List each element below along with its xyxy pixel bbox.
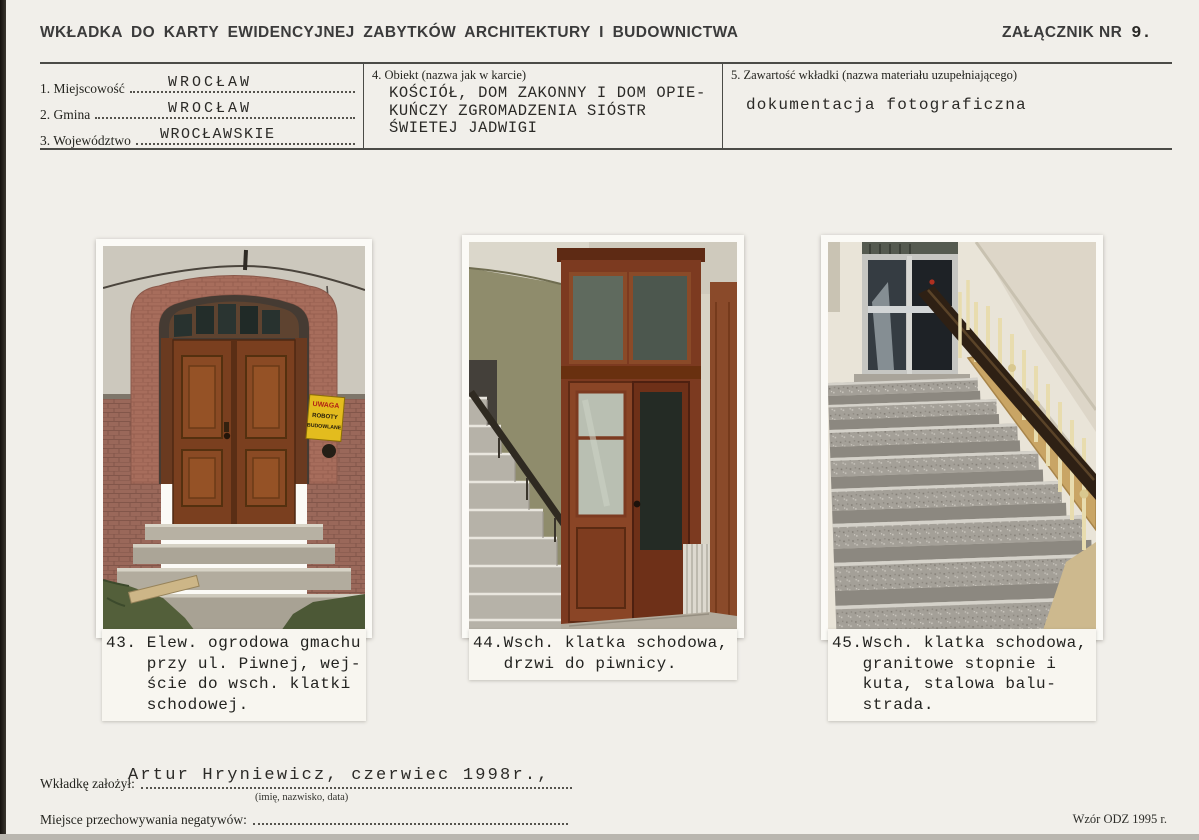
page-title: WKŁADKA DO KARTY EWIDENCYJNEJ ZABYTKÓW A… [40,24,738,42]
caption-photo-43: 43. Elew. ogrodowa gmachu przy ul. Piwne… [102,629,366,721]
photo-cellar-door-image [469,242,737,631]
scanned-record-card: WKŁADKA DO KARTY EWIDENCYJNEJ ZABYTKÓW A… [0,0,1199,840]
fields-col-contents: 5. Zawartość wkładki (nazwa materiału uz… [722,64,1172,148]
field-wojewodztwo-label: 3. Województwo [40,133,131,149]
photo-garden-door: UWAGA ROBOTY BUDOWLANE [96,239,372,638]
scan-edge-left [0,0,6,840]
field-obiekt-value: KOŚCIÓŁ, DOM ZAKONNY I DOM OPIE- KUŃCZY … [389,85,722,138]
hanging-object [322,444,336,458]
field-gmina-value: WROCŁAW [168,100,252,117]
field-zawartosc-value: dokumentacja fotograficzna [746,96,1172,114]
field-miejscowosc-label: 1. Miejscowość [40,81,125,97]
founder-label: Wkładkę założył: [40,776,135,792]
field-miejscowosc: 1. Miejscowość WROCŁAW [40,71,357,97]
photo-granite-stairs [821,235,1103,640]
caption-line: 45.Wsch. klatka schodowa, [832,633,1094,654]
door-knob [634,501,641,508]
field-wojewodztwo: 3. Województwo WROCŁAWSKIE [40,123,357,149]
scan-edge-bottom [0,834,1199,840]
caption-line: 43. Elew. ogrodowa gmachu [106,633,364,654]
founder-value: Artur Hryniewicz, czerwiec 1998r., [128,766,550,785]
glazed-partition [557,248,705,631]
field-wojewodztwo-value: WROCŁAWSKIE [160,126,276,143]
caption-line: strada. [832,695,1094,716]
caption-line: 44.Wsch. klatka schodowa, [473,633,735,654]
field-zawartosc-label: 5. Zawartość wkładki (nazwa materiału uz… [731,68,1172,83]
annex-number: 9. [1131,24,1151,43]
door-handle [224,433,230,439]
photo-cellar-door [462,235,744,638]
fields-col-location: 1. Miejscowość WROCŁAW 2. Gmina WROCŁAW … [40,64,363,148]
caption-line: drzwi do piwnicy. [473,654,735,675]
field-gmina: 2. Gmina WROCŁAW [40,97,357,123]
door-jamb [161,338,173,484]
form-code: Wzór ODZ 1995 r. [1073,812,1167,827]
dotted-line [141,786,572,789]
negatives-row: Miejsce przechowywania negatywów: [40,812,568,828]
field-obiekt-label: 4. Obiekt (nazwa jak w karcie) [372,68,722,83]
caption-photo-45: 45.Wsch. klatka schodowa, granitowe stop… [828,629,1096,721]
fields-col-object: 4. Obiekt (nazwa jak w karcie) KOŚCIÓŁ, … [363,64,722,148]
wooden-double-door [173,340,295,526]
negatives-label: Miejsce przechowywania negatywów: [40,812,247,828]
warning-sign: UWAGA ROBOTY BUDOWLANE [306,395,345,442]
radiator [683,544,709,622]
field-miejscowosc-value: WROCŁAW [168,74,252,91]
photo-garden-door-image: UWAGA ROBOTY BUDOWLANE [103,246,365,631]
caption-photo-44: 44.Wsch. klatka schodowa, drzwi do piwni… [469,629,737,680]
caption-line: granitowe stopnie i [832,654,1094,675]
annex-label: ZAŁĄCZNIK NR [1002,24,1122,42]
field-gmina-label: 2. Gmina [40,107,90,123]
founder-sub-label: (imię, nazwisko, data) [255,792,348,803]
caption-line: schodowej. [106,695,364,716]
dotted-line [253,822,568,825]
photo-granite-stairs-image [828,242,1096,633]
caption-line: ście do wsch. klatki [106,674,364,695]
fields-table: 1. Miejscowość WROCŁAW 2. Gmina WROCŁAW … [40,62,1172,150]
annex-number-block: ZAŁĄCZNIK NR 9. [1002,24,1152,43]
caption-line: przy ul. Piwnej, wej- [106,654,364,675]
caption-line: kuta, stalowa balu- [832,674,1094,695]
right-door-jamb [710,282,737,631]
